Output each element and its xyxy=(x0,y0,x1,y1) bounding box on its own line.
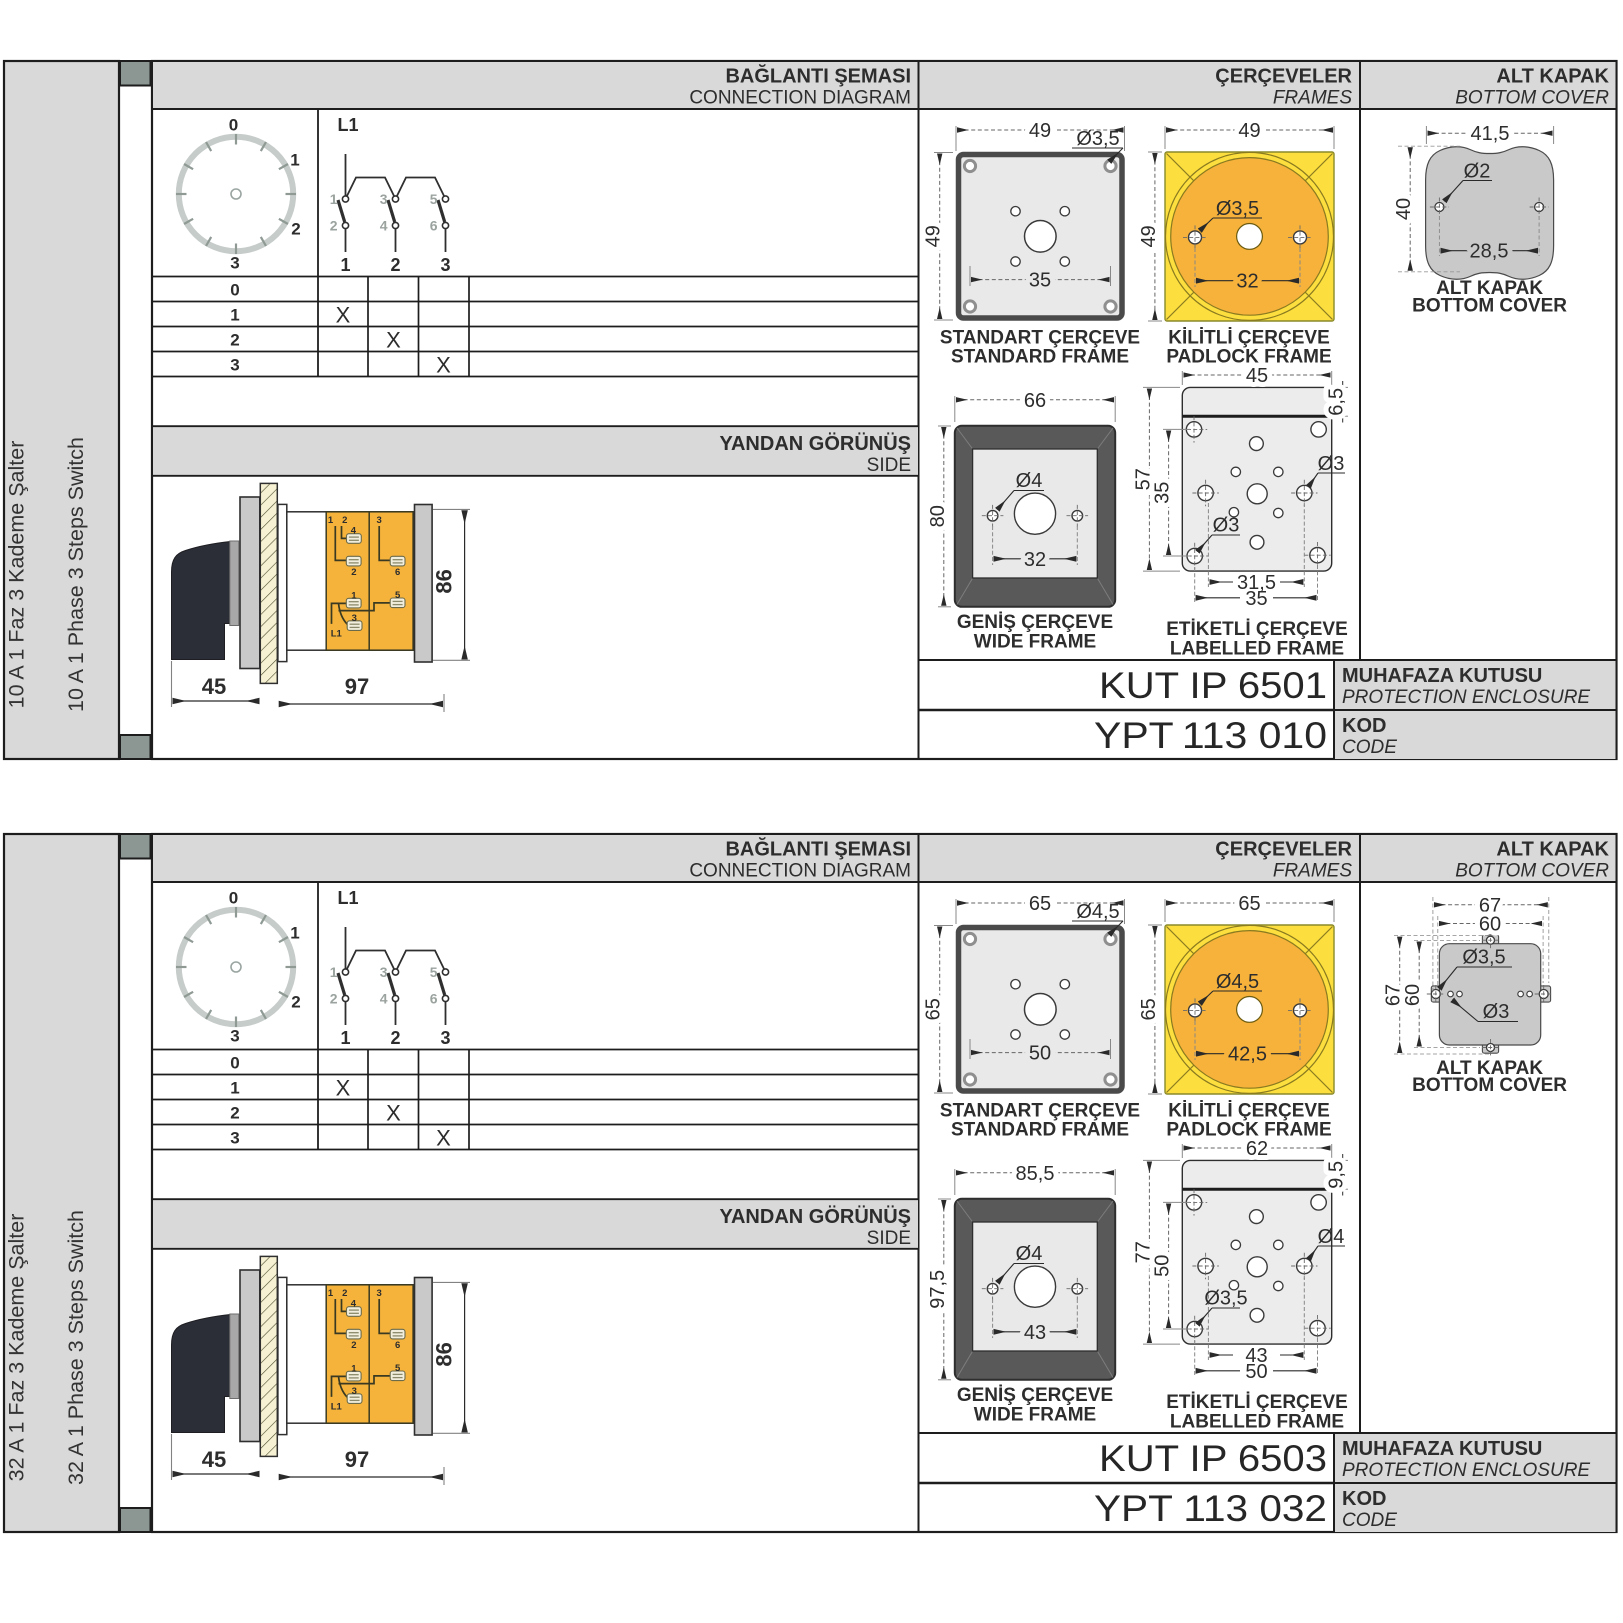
svg-text:YPT 113 010: YPT 113 010 xyxy=(1094,715,1327,756)
svg-text:41,5: 41,5 xyxy=(1471,123,1510,145)
svg-text:35: 35 xyxy=(1245,588,1267,610)
svg-text:42,5: 42,5 xyxy=(1228,1044,1267,1066)
svg-text:Ø2: Ø2 xyxy=(1464,161,1491,183)
svg-text:Ø4: Ø4 xyxy=(1016,1243,1043,1265)
svg-text:50: 50 xyxy=(1029,1043,1051,1065)
svg-text:Ø4,5: Ø4,5 xyxy=(1216,971,1259,993)
svg-text:49: 49 xyxy=(1238,120,1260,142)
svg-text:65: 65 xyxy=(1138,998,1160,1020)
svg-text:Ø3: Ø3 xyxy=(1213,515,1240,537)
svg-text:BOTTOM COVER: BOTTOM COVER xyxy=(1412,296,1567,317)
svg-text:50: 50 xyxy=(1245,1361,1267,1383)
svg-text:60: 60 xyxy=(1402,984,1424,1006)
svg-text:32: 32 xyxy=(1236,271,1258,293)
svg-text:32 A 1 Faz 3 Kademe Şalter: 32 A 1 Faz 3 Kademe Şalter xyxy=(5,1214,29,1482)
svg-text:KUT IP 6503: KUT IP 6503 xyxy=(1099,1438,1327,1479)
svg-text:65: 65 xyxy=(923,998,945,1020)
svg-text:50: 50 xyxy=(1152,1255,1174,1277)
svg-text:9,5: 9,5 xyxy=(1326,1161,1348,1189)
svg-text:43: 43 xyxy=(1024,1322,1046,1344)
svg-text:49: 49 xyxy=(1029,120,1051,142)
svg-text:Ø3,5: Ø3,5 xyxy=(1216,198,1259,220)
svg-text:Ø3,5: Ø3,5 xyxy=(1462,947,1505,969)
svg-text:35: 35 xyxy=(1152,482,1174,504)
svg-text:Ø4: Ø4 xyxy=(1016,470,1043,492)
svg-text:49: 49 xyxy=(923,225,945,247)
svg-text:Ø4,5: Ø4,5 xyxy=(1076,901,1119,923)
svg-text:40: 40 xyxy=(1393,198,1415,220)
svg-text:32: 32 xyxy=(1024,549,1046,571)
svg-text:28,5: 28,5 xyxy=(1470,241,1509,263)
svg-text:45: 45 xyxy=(1246,365,1268,387)
svg-text:49: 49 xyxy=(1138,225,1160,247)
svg-text:Ø3: Ø3 xyxy=(1483,1001,1510,1023)
svg-text:97,5: 97,5 xyxy=(927,1270,949,1309)
svg-text:62: 62 xyxy=(1246,1138,1268,1160)
svg-text:6,5: 6,5 xyxy=(1326,388,1348,416)
svg-text:85,5: 85,5 xyxy=(1016,1163,1055,1185)
svg-text:Ø3: Ø3 xyxy=(1318,453,1345,475)
svg-text:10 A 1 Faz 3 Kademe Şalter: 10 A 1 Faz 3 Kademe Şalter xyxy=(5,441,29,709)
svg-text:KUT IP 6501: KUT IP 6501 xyxy=(1099,665,1327,706)
svg-text:10 A 1 Phase 3 Steps Switch: 10 A 1 Phase 3 Steps Switch xyxy=(64,437,88,712)
svg-text:80: 80 xyxy=(927,505,949,527)
svg-text:Ø3,5: Ø3,5 xyxy=(1076,128,1119,150)
svg-text:66: 66 xyxy=(1024,390,1046,412)
svg-text:32 A 1 Phase 3 Steps Switch: 32 A 1 Phase 3 Steps Switch xyxy=(64,1210,88,1485)
svg-text:65: 65 xyxy=(1238,893,1260,915)
svg-text:Ø3,5: Ø3,5 xyxy=(1204,1288,1247,1310)
svg-text:60: 60 xyxy=(1479,914,1501,936)
svg-text:Ø4: Ø4 xyxy=(1318,1226,1345,1248)
svg-text:BOTTOM COVER: BOTTOM COVER xyxy=(1412,1075,1567,1096)
svg-text:65: 65 xyxy=(1029,893,1051,915)
svg-text:YPT 113 032: YPT 113 032 xyxy=(1094,1488,1327,1529)
svg-text:35: 35 xyxy=(1029,270,1051,292)
